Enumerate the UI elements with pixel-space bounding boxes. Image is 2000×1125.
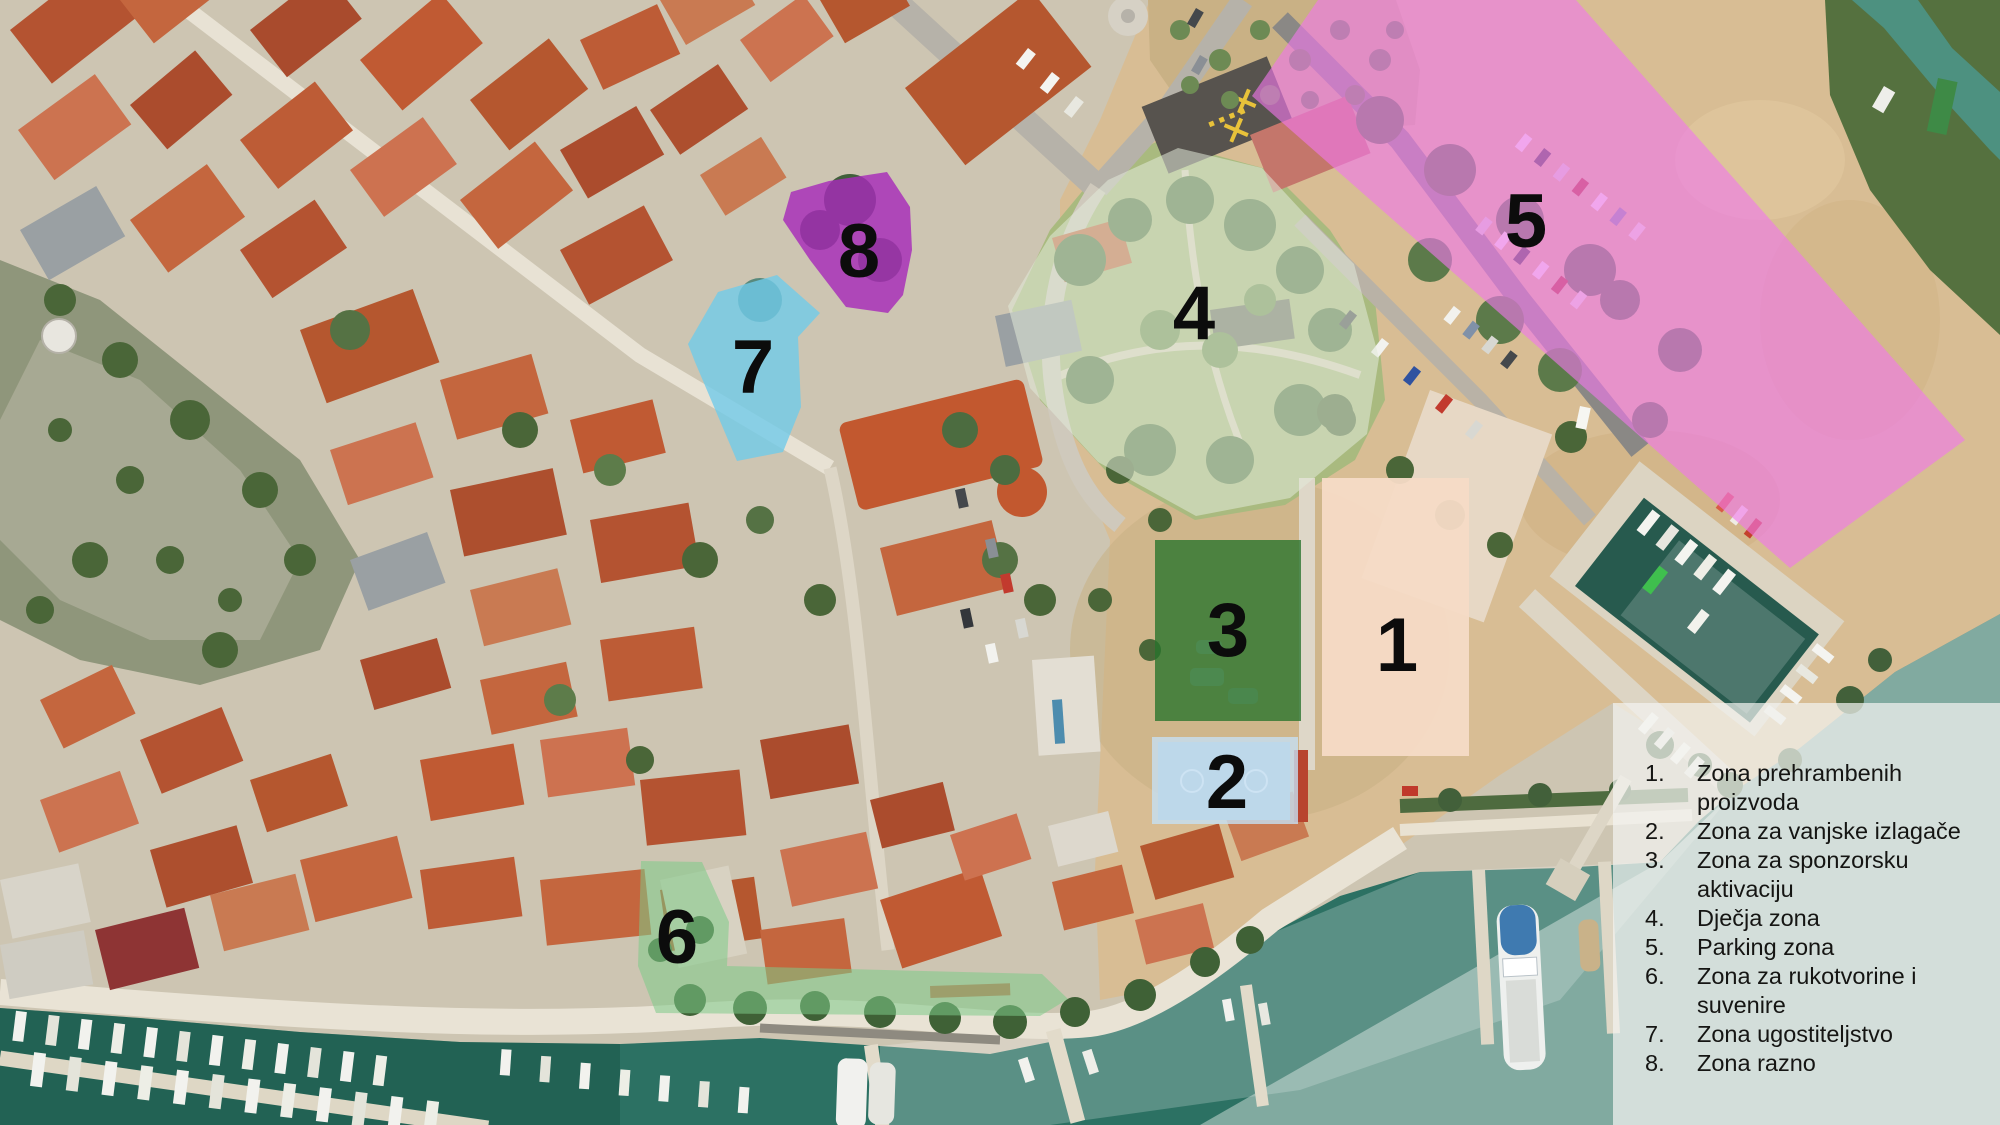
legend-item-6: 6. Zona za rukotvorine i suvenire bbox=[1645, 962, 1984, 1020]
legend-item-8: 8. Zona razno bbox=[1645, 1049, 1984, 1078]
zone-8-label: 8 bbox=[838, 214, 878, 290]
legend-panel: 1. Zona prehrambenih proizvoda 2. Zona z… bbox=[1613, 703, 2000, 1125]
legend-item-4: 4. Dječja zona bbox=[1645, 904, 1984, 933]
zone-5-label: 5 bbox=[1505, 184, 1545, 260]
zone-3-label: 3 bbox=[1207, 593, 1247, 669]
legend-item-2: 2. Zona za vanjske izlagače bbox=[1645, 817, 1984, 846]
legend-item-1: 1. Zona prehrambenih proizvoda bbox=[1645, 759, 1984, 817]
legend-item-7: 7. Zona ugostiteljstvo bbox=[1645, 1020, 1984, 1049]
zone-7-label: 7 bbox=[732, 330, 772, 406]
legend-item-number: 7. bbox=[1645, 1020, 1697, 1049]
legend-item-label: Zona razno bbox=[1697, 1049, 1984, 1078]
legend-item-number: 8. bbox=[1645, 1049, 1697, 1078]
zone-2-label: 2 bbox=[1206, 745, 1246, 821]
legend-item-label: Dječja zona bbox=[1697, 904, 1984, 933]
legend-item-label: Zona za vanjske izlagače bbox=[1697, 817, 1984, 846]
legend-item-3: 3. Zona za sponzorsku aktivaciju bbox=[1645, 846, 1984, 904]
legend-item-number: 6. bbox=[1645, 962, 1697, 991]
legend-item-label: Parking zona bbox=[1697, 933, 1984, 962]
legend-item-number: 4. bbox=[1645, 904, 1697, 933]
legend-item-5: 5. Parking zona bbox=[1645, 933, 1984, 962]
legend-item-label: Zona za rukotvorine i suvenire bbox=[1697, 962, 1984, 1020]
legend-item-number: 3. bbox=[1645, 846, 1697, 875]
legend-item-number: 2. bbox=[1645, 817, 1697, 846]
legend-item-number: 5. bbox=[1645, 933, 1697, 962]
legend-item-label: Zona za sponzorsku aktivaciju bbox=[1697, 846, 1984, 904]
event-zones-map: 1 2 3 4 5 6 7 8 1. Zona prehrambenih pro… bbox=[0, 0, 2000, 1125]
zone-1-label: 1 bbox=[1376, 608, 1416, 684]
legend-item-number: 1. bbox=[1645, 759, 1697, 788]
legend-item-label: Zona prehrambenih proizvoda bbox=[1697, 759, 1984, 817]
legend-item-label: Zona ugostiteljstvo bbox=[1697, 1020, 1984, 1049]
ferry-boat bbox=[1496, 904, 1547, 1071]
zone-6-label: 6 bbox=[656, 900, 696, 976]
zone-4-label: 4 bbox=[1173, 276, 1213, 352]
legend-list: 1. Zona prehrambenih proizvoda 2. Zona z… bbox=[1645, 759, 1984, 1078]
